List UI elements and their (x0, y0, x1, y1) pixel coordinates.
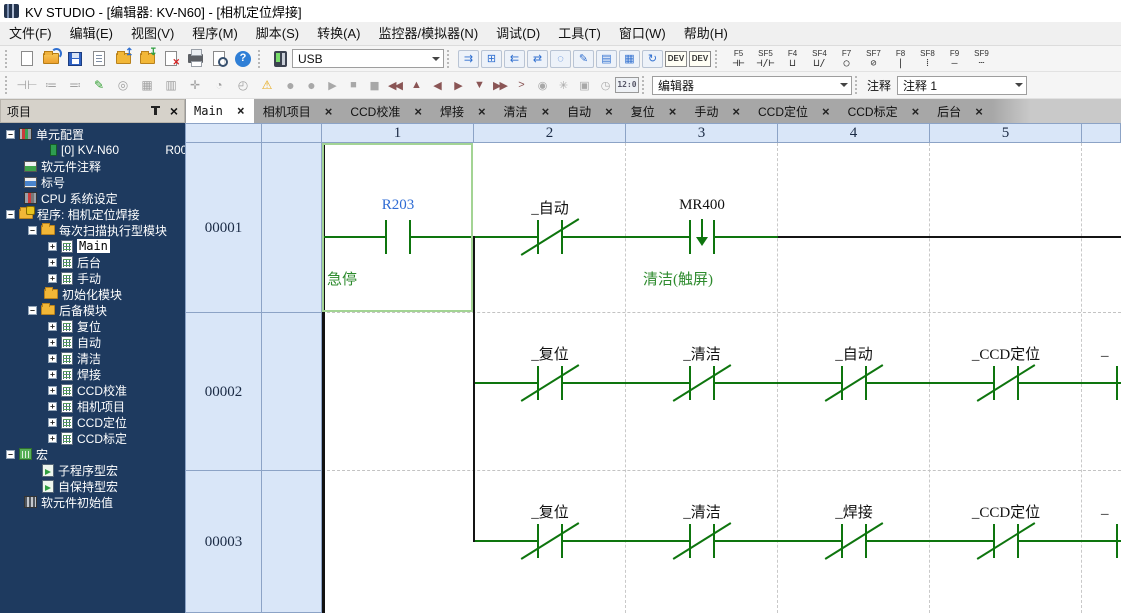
instruction-f9-button[interactable]: F9— (941, 47, 968, 71)
tab-ccd-positioning[interactable]: CCD定位× (749, 99, 839, 123)
tree-item-kv-n60[interactable]: [0] KV-N60R000 (0, 142, 185, 158)
contact-bar (561, 524, 563, 558)
device-label: _CCD定位 (931, 343, 1081, 364)
toolbar-handle (258, 50, 264, 68)
hline-icon: — (951, 58, 957, 69)
menu-convert[interactable]: 转换(A) (308, 22, 369, 45)
contact-bar (713, 220, 715, 254)
pause-icon[interactable]: ▮▮ (363, 79, 384, 92)
run-to-cursor-icon[interactable]: > (510, 79, 531, 91)
save-project-button[interactable] (63, 48, 87, 70)
folder-read-icon (116, 53, 131, 64)
fall-contact-icon: ⊔/ (813, 58, 825, 69)
menu-monitor-simulator[interactable]: 监控器/模拟器(N) (369, 22, 487, 45)
expand-icon[interactable] (48, 386, 57, 395)
select-contact-icon[interactable]: ⊣⊢ (15, 78, 39, 92)
macro-icon (19, 448, 32, 460)
comment-set-select[interactable]: 注释 1 (897, 76, 1027, 95)
connection-select[interactable]: USB (292, 49, 444, 68)
tree-item-label: 后台 (77, 254, 101, 271)
read-program-button[interactable] (111, 48, 135, 70)
close-icon[interactable]: × (325, 104, 333, 119)
device-label: MR400 (627, 197, 777, 214)
contact-bar (1017, 366, 1019, 400)
tree-item-camera-project[interactable]: 相机项目 (0, 398, 185, 414)
tree-item-init-module-folder[interactable]: 初始化模块 (0, 286, 185, 302)
device-label: _焊接 (779, 501, 929, 522)
ladder-header-col-3: 3 (625, 123, 778, 143)
fast-forward-icon[interactable]: ▶▶ (489, 79, 510, 92)
nc-slash (521, 218, 580, 256)
dev-badge-1[interactable]: DEV (665, 51, 687, 67)
view-glasses-icon[interactable]: ◎ (111, 78, 135, 92)
rise-contact-icon: ⊔ (789, 58, 795, 69)
sync-transfer-button[interactable]: ↻ (642, 50, 663, 68)
rung-aux-cell (261, 142, 322, 313)
ladder-doc-icon (93, 51, 105, 66)
ladder-header-col-1: 1 (321, 123, 474, 143)
step-back-icon[interactable]: ◀ (426, 79, 447, 92)
pin-icon[interactable] (151, 106, 160, 117)
menu-debug[interactable]: 调试(D) (487, 22, 549, 45)
nc-contact[interactable]: _自动 (824, 345, 884, 421)
ladder-header-col-2: 2 (473, 123, 626, 143)
sync-transfer-icon: ↻ (648, 52, 657, 65)
rung-number[interactable]: 00001 (185, 142, 262, 313)
tab-main[interactable]: Main× (185, 99, 254, 123)
close-icon[interactable]: × (912, 104, 920, 119)
ladder-header-col-5: 5 (929, 123, 1082, 143)
hline-del-icon: ┄ (978, 58, 984, 69)
device-label: _复位 (475, 501, 625, 522)
contact-bar (865, 524, 867, 558)
tree-item-label: 每次扫描执行型模块 (59, 222, 167, 239)
menu-program[interactable]: 程序(M) (183, 22, 247, 45)
close-icon[interactable]: × (414, 104, 422, 119)
close-icon[interactable]: × (237, 104, 245, 119)
contact-comment: 清洁(触屏) (643, 268, 713, 289)
tab-label: 清洁 (504, 103, 528, 120)
instruction-f4-button[interactable]: F4⊔ (779, 47, 806, 71)
vline-del-icon: ⁞ (926, 58, 929, 69)
tree-item-welding[interactable]: 焊接 (0, 366, 185, 382)
nc-contact[interactable]: _清洁 (672, 345, 732, 421)
device-monitor-icon: ▦ (624, 52, 634, 65)
folder-icon (41, 225, 55, 235)
clock-badge-icon[interactable]: 12:0 (615, 77, 639, 93)
tab-reset[interactable]: 复位× (622, 99, 686, 123)
expand-icon[interactable] (48, 370, 57, 379)
tab-manual[interactable]: 手动× (685, 99, 749, 123)
ladder-module-icon (61, 272, 73, 285)
editor-tab-bar: Main× 相机项目× CCD校准× 焊接× 清洁× 自动× 复位× 手动× C… (185, 99, 1121, 123)
expand-icon[interactable] (48, 434, 57, 443)
rewind-icon[interactable]: ◀◀ (384, 79, 405, 92)
rung-number[interactable]: 00003 (185, 470, 262, 613)
nc-slash (825, 522, 884, 560)
window-title: KV STUDIO - [编辑器: KV-N60] - [相机定位焊接] (25, 2, 302, 21)
ladder-module-icon (61, 352, 73, 365)
tree-item-reset[interactable]: 复位 (0, 318, 185, 334)
fkey-label: SF8 (920, 49, 935, 58)
expand-icon[interactable] (48, 322, 57, 331)
expand-icon[interactable] (48, 354, 57, 363)
tree-item-background[interactable]: 后台 (0, 254, 185, 270)
fkey-label: SF7 (866, 49, 881, 58)
ladder-module-icon (61, 384, 73, 397)
close-icon[interactable]: × (822, 104, 830, 119)
ladder-editor[interactable]: 1 2 3 4 5 00001 00002 00003 R203 (185, 123, 1121, 613)
verify-icon: ⇄ (533, 52, 542, 65)
vline-icon: | (897, 58, 903, 69)
device-label: _清洁 (627, 343, 777, 364)
device-initial-values-icon (24, 496, 37, 508)
chevron-down-icon (1011, 77, 1026, 94)
read-from-plc-button[interactable]: ⇇ (504, 50, 525, 68)
ladder-grid-icon[interactable]: ▦ (135, 78, 159, 92)
tree-item-label-list[interactable]: 标号 (0, 174, 185, 190)
print-preview-button[interactable] (207, 48, 231, 70)
rung-aux-cell (261, 312, 322, 471)
tab-ccd-calibration[interactable]: CCD校准× (341, 99, 431, 123)
plc-unit-icon (50, 144, 57, 156)
tree-item-label: 程序: 相机定位焊接 (37, 206, 140, 223)
help-button[interactable] (231, 48, 255, 70)
tab-cleaning[interactable]: 清洁× (495, 99, 559, 123)
menu-script[interactable]: 脚本(S) (247, 22, 308, 45)
toolbar-handle (5, 76, 11, 94)
tree-item-ccd-calibration[interactable]: CCD校准 (0, 382, 185, 398)
device-label-partial: _ (1101, 343, 1109, 360)
tree-item-ccd-marking[interactable]: CCD标定 (0, 430, 185, 446)
device-label: _清洁 (627, 501, 777, 522)
tree-item-label: 单元配置 (36, 126, 84, 143)
contact-bar (1116, 524, 1118, 558)
registers-icon[interactable]: ▥ (159, 78, 183, 92)
editor-mode-value: 编辑器 (653, 77, 836, 94)
dev-badge-2[interactable]: DEV (689, 51, 711, 67)
collapse-icon[interactable] (6, 130, 15, 139)
tree-item-label: 软元件注释 (41, 158, 101, 175)
expand-icon[interactable] (48, 338, 57, 347)
device-monitor-button[interactable]: ▦ (619, 50, 640, 68)
fkey-label: SF4 (812, 49, 827, 58)
menu-view[interactable]: 视图(V) (122, 22, 183, 45)
close-icon[interactable]: × (542, 104, 550, 119)
tree-item-label: 后备模块 (59, 302, 107, 319)
touch-icon[interactable]: ✛ (183, 78, 207, 92)
nc-contact[interactable]: _自动 (520, 199, 580, 275)
tab-label: 手动 (694, 103, 718, 120)
nc-contact-icon: ⊣/⊢ (756, 58, 774, 69)
tree-item-subroutine-macro[interactable]: 子程序型宏 (0, 462, 185, 478)
falling-arrow-head (696, 237, 708, 246)
open-folder-icon (43, 53, 59, 64)
contact-bar (561, 366, 563, 400)
step-forward-icon[interactable]: ▶ (447, 79, 468, 92)
save-ladder-button[interactable] (87, 48, 111, 70)
tree-item-label: 复位 (77, 318, 101, 335)
collapse-icon[interactable] (6, 450, 15, 459)
monitor-edit-icon: ✎ (579, 52, 588, 65)
tree-item-label: CPU 系统设定 (41, 190, 118, 207)
comment-set-value: 注释 1 (898, 77, 1011, 94)
instruction-f5-button[interactable]: F5⊣⊢ (725, 47, 752, 71)
expand-icon[interactable] (48, 402, 57, 411)
rung-wire (778, 236, 1121, 238)
ladder-module-icon (61, 400, 73, 413)
print-button[interactable] (183, 48, 207, 70)
tree-item-label: Main (77, 239, 110, 253)
print-preview-icon (213, 51, 225, 66)
folder-write-icon (140, 53, 155, 64)
tab-ccd-marking[interactable]: CCD标定× (839, 99, 929, 123)
tree-item-main[interactable]: Main (0, 238, 185, 254)
fkey-label: F8 (896, 49, 905, 58)
instruction-f8-button[interactable]: F8| (887, 47, 914, 71)
play-icon[interactable]: ▶ (321, 79, 342, 92)
tree-item-scan-module-folder[interactable]: 每次扫描执行型模块 (0, 222, 185, 238)
step-up-icon[interactable]: ▲ (405, 79, 426, 91)
tree-item-label: 焊接 (77, 366, 101, 383)
tree-item-unit-config[interactable]: 单元配置 (0, 126, 185, 142)
editor-mode-select[interactable]: 编辑器 (652, 76, 852, 95)
ladder-header-col-4: 4 (777, 123, 930, 143)
ladder-module-icon (61, 416, 73, 429)
tree-item-label: 自保持型宏 (58, 478, 118, 495)
contact-bar (713, 366, 715, 400)
fkey-label: SF9 (974, 49, 989, 58)
device-label: _自动 (779, 343, 929, 364)
ladder-module-icon (61, 432, 73, 445)
grid-line (777, 143, 778, 613)
stopwatch-icon[interactable]: ◷ (594, 79, 615, 92)
collapse-icon[interactable] (6, 210, 15, 219)
nc-slash (673, 522, 732, 560)
instruction-f7-button[interactable]: F7○ (833, 47, 860, 71)
screen-time-icon[interactable]: ◔ (207, 78, 231, 92)
nc-contact[interactable]: _CCD定位 (976, 345, 1036, 421)
stop-icon[interactable]: ■ (342, 79, 363, 91)
close-icon[interactable]: × (605, 104, 613, 119)
ladder-header-aux (261, 123, 322, 143)
falling-edge-contact[interactable]: MR400 (672, 199, 732, 275)
tab-label: 相机项目 (263, 103, 311, 120)
verify-button[interactable]: ⇄ (527, 50, 548, 68)
tree-item-label: CCD标定 (77, 430, 127, 447)
tree-item-selfhold-macro[interactable]: 自保持型宏 (0, 478, 185, 494)
expand-icon[interactable] (48, 242, 57, 251)
tree-item-label: 相机项目 (77, 398, 125, 415)
menu-help[interactable]: 帮助(H) (675, 22, 737, 45)
delete-program-button[interactable] (159, 48, 183, 70)
tree-item-cpu-settings[interactable]: CPU 系统设定 (0, 190, 185, 206)
tree-item-program-root[interactable]: 程序: 相机定位焊接 (0, 206, 185, 222)
contact-bar (1017, 524, 1019, 558)
contact-comment: 急停 (327, 268, 357, 289)
ladder-module-icon (61, 368, 73, 381)
tab-label: 后台 (937, 103, 961, 120)
ladder-header-col-6 (1081, 123, 1121, 143)
rung-number[interactable]: 00002 (185, 312, 262, 471)
tab-label: Main (194, 104, 223, 118)
device-label: _CCD定位 (931, 501, 1081, 522)
tab-auto[interactable]: 自动× (558, 99, 622, 123)
project-panel-header: 项目 × (0, 99, 185, 123)
toolbar-handle (855, 76, 861, 94)
no-contact[interactable]: R203 (368, 199, 428, 275)
close-icon[interactable]: × (975, 104, 983, 119)
project-tree: 单元配置 [0] KV-N60R000 软元件注释 标号 CPU 系统设定 程序… (0, 123, 185, 613)
fkey-label: F4 (788, 49, 797, 58)
expand-icon[interactable] (48, 418, 57, 427)
connection-value: USB (293, 52, 428, 66)
close-icon[interactable]: × (669, 104, 677, 119)
instruction-sf5-button[interactable]: SF5⊣/⊢ (752, 47, 779, 71)
tree-item-standby-module-folder[interactable]: 后备模块 (0, 302, 185, 318)
tree-item-label: 自动 (77, 334, 101, 351)
grid-line (625, 143, 626, 613)
doc-time-icon[interactable]: ◴ (231, 78, 255, 92)
nc-slash (977, 364, 1036, 402)
subroutine-macro-icon (42, 464, 54, 477)
tree-item-label: 宏 (36, 446, 48, 463)
monitor-edit-button[interactable]: ✎ (573, 50, 594, 68)
instruction-sf7-button[interactable]: SF7⊘ (860, 47, 887, 71)
print-icon (188, 54, 203, 63)
simulator-icon: ▤ (601, 52, 611, 65)
hand-pause-icon[interactable]: ✳ (552, 79, 573, 92)
no-contact-icon: ⊣⊢ (732, 58, 744, 69)
expand-icon[interactable] (48, 274, 57, 283)
close-icon[interactable]: × (170, 104, 178, 118)
tree-item-label: CCD定位 (77, 414, 127, 431)
ladder-module-icon (61, 320, 73, 333)
instruction-sf4-button[interactable]: SF4⊔/ (806, 47, 833, 71)
close-icon[interactable]: × (478, 104, 486, 119)
new-file-button[interactable] (15, 48, 39, 70)
nc-contact[interactable]: _清洁 (672, 503, 732, 579)
delete-doc-icon (165, 51, 177, 66)
open-project-button[interactable] (39, 48, 63, 70)
save-floppy-icon (68, 52, 82, 66)
tree-item-cleaning[interactable]: 清洁 (0, 350, 185, 366)
edit-comment-icon[interactable]: ✎ (87, 78, 111, 92)
unit-address-label: R000 (165, 143, 185, 157)
simulator-button[interactable]: ▤ (596, 50, 617, 68)
instruction-sf8-button[interactable]: SF8⁞ (914, 47, 941, 71)
tab-label: 自动 (567, 103, 591, 120)
tab-background[interactable]: 后台× (928, 99, 992, 123)
contact-bar (409, 220, 411, 254)
ladder-module-icon (61, 256, 73, 269)
menu-tools[interactable]: 工具(T) (549, 22, 610, 45)
fkey-label: F5 (734, 49, 743, 58)
tree-item-label: 标号 (41, 174, 65, 191)
nc-slash (521, 364, 580, 402)
write-program-button[interactable] (135, 48, 159, 70)
tab-label: CCD定位 (758, 103, 808, 120)
communication-settings-button[interactable] (268, 48, 292, 70)
menu-file[interactable]: 文件(F) (0, 22, 61, 45)
menu-window[interactable]: 窗口(W) (610, 22, 675, 45)
tree-item-device-initial-values[interactable]: 软元件初始值 (0, 494, 185, 510)
expand-icon[interactable] (48, 258, 57, 267)
project-panel-title: 项目 (7, 103, 151, 120)
record-icon[interactable]: ● (279, 77, 300, 93)
kv-studio-window: KV STUDIO - [编辑器: KV-N60] - [相机定位焊接] 文件(… (0, 0, 1121, 613)
contact-gap (387, 233, 409, 241)
tree-item-label: 初始化模块 (62, 286, 122, 303)
nc-contact[interactable]: _CCD定位 (976, 503, 1036, 579)
find-compare-button[interactable]: ◌ (550, 50, 571, 68)
fkey-label: SF5 (758, 49, 773, 58)
transfer-to-plc-button[interactable]: ⇉ (458, 50, 479, 68)
tab-camera-project[interactable]: 相机项目× (254, 99, 342, 123)
tab-welding[interactable]: 焊接× (431, 99, 495, 123)
app-icon (4, 4, 19, 18)
folder-icon (44, 289, 58, 299)
collapse-icon[interactable] (28, 226, 37, 235)
comment-set-label: 注释 (867, 77, 891, 94)
read-from-plc-icon: ⇇ (510, 52, 519, 65)
contact-bar (561, 220, 563, 254)
close-icon[interactable]: × (732, 104, 740, 119)
menu-edit[interactable]: 编辑(E) (61, 22, 122, 45)
record-alt-icon[interactable]: ● (300, 77, 321, 93)
fkey-label: F9 (950, 49, 959, 58)
error-monitor-icon[interactable]: ⚠ (255, 78, 279, 92)
device-label-list-icon[interactable]: ≕ (63, 78, 87, 92)
tree-item-label: 软元件初始值 (41, 494, 113, 511)
transfer-to-plc-icon: ⇉ (464, 52, 473, 65)
step-down-icon[interactable]: ▼ (468, 79, 489, 91)
find-compare-icon: ◌ (557, 53, 564, 65)
tree-item-ccd-positioning[interactable]: CCD定位 (0, 414, 185, 430)
device-comment-list-icon[interactable]: ≔ (39, 78, 63, 92)
title-bar: KV STUDIO - [编辑器: KV-N60] - [相机定位焊接] (0, 0, 1121, 22)
or-branch-connector (473, 236, 475, 542)
tree-item-manual[interactable]: 手动 (0, 270, 185, 286)
screen-monitor-icon[interactable]: ▣ (573, 79, 594, 92)
drop-marker-icon[interactable]: ◉ (531, 79, 552, 92)
plc-comment-icon: ⊞ (487, 52, 496, 65)
tree-item-macro[interactable]: 宏 (0, 446, 185, 462)
grid-line (322, 312, 1121, 313)
tree-item-label: 子程序型宏 (58, 462, 118, 479)
device-label: R203 (323, 197, 473, 214)
unit-config-icon (19, 128, 32, 140)
tree-item-label: CCD校准 (77, 382, 127, 399)
tab-label: 焊接 (440, 103, 464, 120)
nc-contact[interactable]: _复位 (520, 503, 580, 579)
device-comment-icon (24, 161, 37, 172)
menu-bar: 文件(F) 编辑(E) 视图(V) 程序(M) 脚本(S) 转换(A) 监控器/… (0, 22, 1121, 46)
instruction-sf9-button[interactable]: SF9┄ (968, 47, 995, 71)
grid-line (1081, 143, 1082, 613)
tree-item-auto[interactable]: 自动 (0, 334, 185, 350)
tree-item-device-comment[interactable]: 软元件注释 (0, 158, 185, 174)
selfhold-macro-icon (42, 480, 54, 493)
nc-slash (521, 522, 580, 560)
folder-icon (41, 305, 55, 315)
contact-bar (713, 524, 715, 558)
plc-comment-button[interactable]: ⊞ (481, 50, 502, 68)
label-icon (24, 177, 37, 188)
collapse-icon[interactable] (28, 306, 37, 315)
nc-contact[interactable]: _复位 (520, 345, 580, 421)
nc-contact[interactable]: _焊接 (824, 503, 884, 579)
